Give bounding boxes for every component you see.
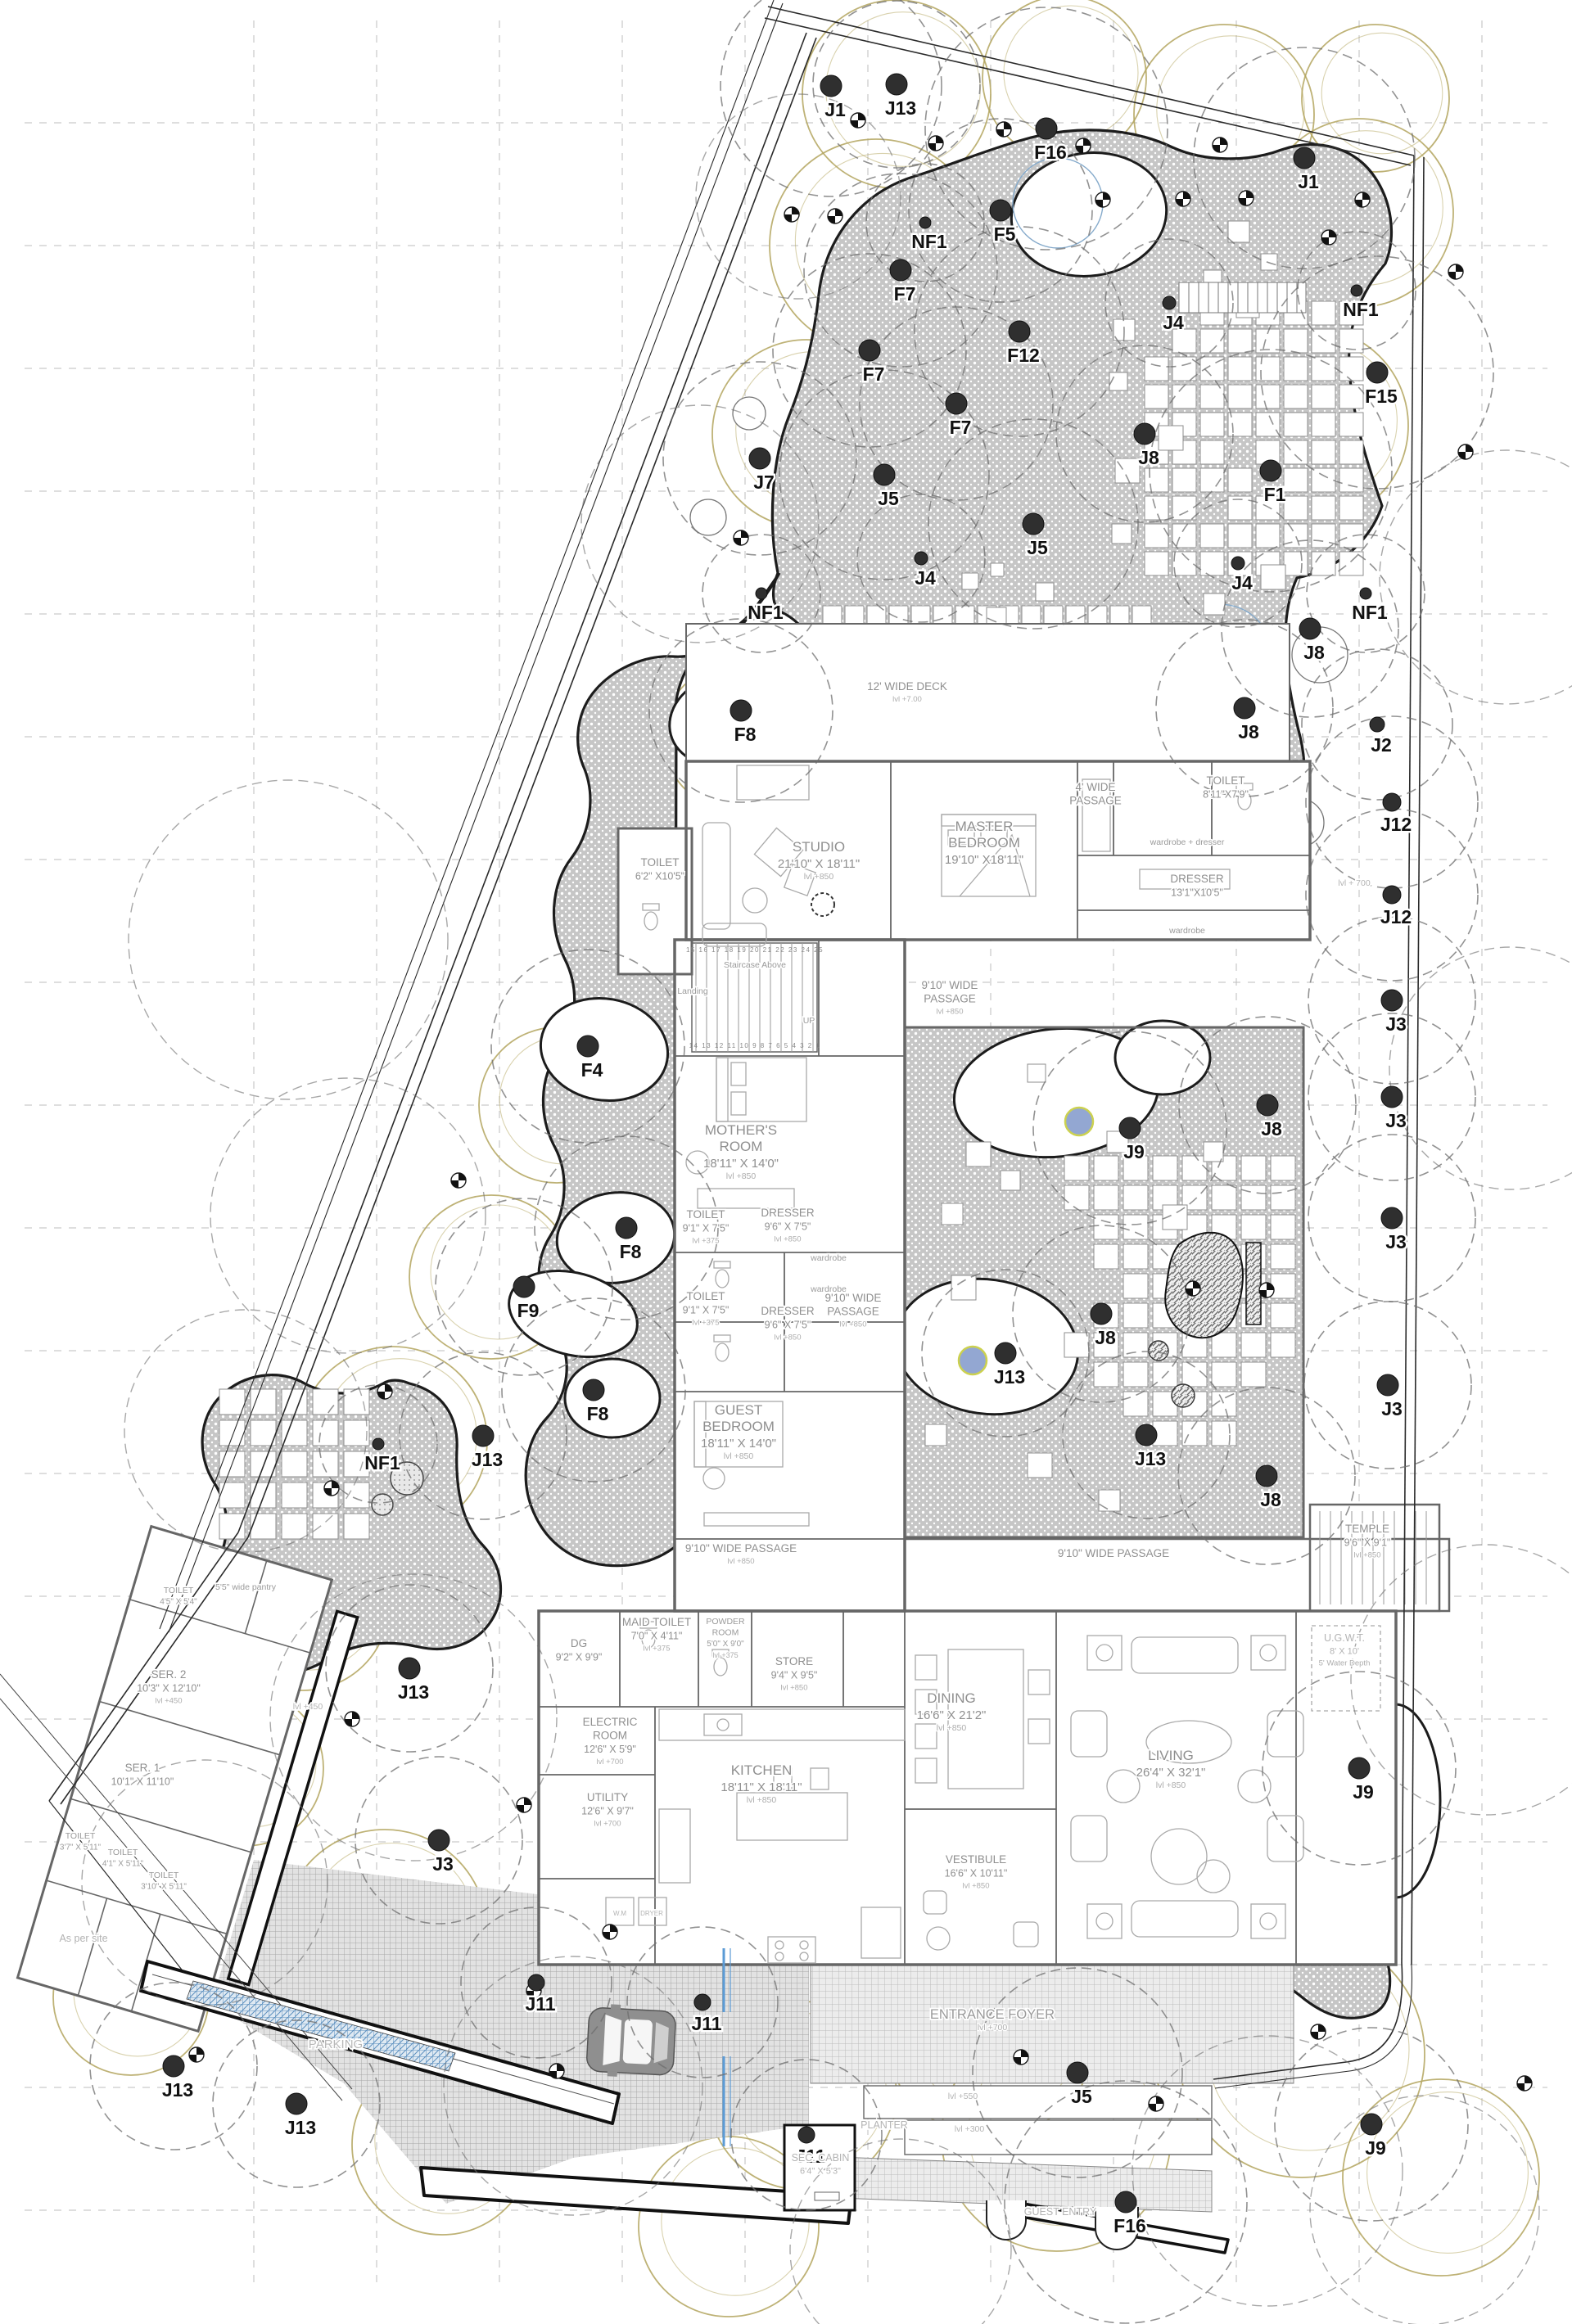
- room-name: 4' WIDE: [1075, 781, 1115, 793]
- plant-dot-F7: [946, 393, 967, 414]
- room-name: PARKING: [309, 2037, 363, 2051]
- room-name: SER. 2: [151, 1668, 187, 1681]
- plant-dot-J8: [1256, 1465, 1277, 1487]
- room-level: lvl +450: [155, 1697, 182, 1706]
- room-name: DRESSER: [761, 1305, 815, 1317]
- room-name: BEDROOM: [702, 1419, 775, 1434]
- plant-label-F4: F4: [581, 1059, 603, 1081]
- plant-label-NF1: NF1: [1343, 299, 1379, 320]
- plant-dot-J8: [1257, 1094, 1278, 1116]
- plant-dot-J3: [1377, 1374, 1398, 1396]
- survey-marker: [828, 209, 842, 223]
- survey-marker: [189, 2047, 204, 2062]
- plant-dot-J9: [1361, 2114, 1382, 2135]
- plant-dot-J8: [1299, 618, 1321, 639]
- room-name: PASSAGE: [924, 993, 976, 1005]
- survey-marker: [1176, 192, 1190, 206]
- room-name: DRESSER: [1170, 873, 1224, 885]
- plant-label-J8: J8: [1303, 642, 1325, 663]
- plant-label-J3: J3: [1385, 1110, 1407, 1131]
- plant-label-J4: J4: [1231, 572, 1253, 593]
- plant-dot-J3: [1381, 1207, 1403, 1229]
- plant-label-J8: J8: [1138, 447, 1159, 468]
- room-name: PASSAGE: [1069, 795, 1122, 807]
- room-name: TOILET: [149, 1870, 179, 1880]
- survey-marker: [1448, 264, 1463, 279]
- room-dims: 8'11"X7'9": [1203, 789, 1249, 801]
- room-name: 12' WIDE DECK: [867, 680, 947, 693]
- room-level: lvl +850: [839, 1320, 866, 1329]
- survey-marker: [1259, 1283, 1274, 1297]
- plant-label-J11: J11: [525, 1993, 555, 2015]
- tree-ring: [733, 397, 766, 430]
- survey-marker: [377, 1384, 392, 1399]
- room-dims: 13'1"X10'5": [1171, 887, 1223, 899]
- plant-label-F16: F16: [1034, 142, 1067, 163]
- room-dims: 18'11" X 14'0": [703, 1157, 779, 1171]
- plant-label-F8: F8: [620, 1241, 642, 1262]
- plant-label-J3: J3: [1381, 1398, 1403, 1419]
- plant-label-J13: J13: [398, 1681, 429, 1703]
- survey-marker: [1239, 191, 1254, 205]
- room-dims: 21'10" X 18'11": [778, 857, 860, 871]
- plant-dot-J8: [1134, 423, 1155, 444]
- planter-step-300: [905, 2120, 1212, 2155]
- plant-dot-J3: [1381, 990, 1403, 1011]
- plant-dot-J5: [1023, 513, 1044, 535]
- plant-label-J13: J13: [1135, 1448, 1166, 1469]
- room-level: lvl +850: [1156, 1780, 1186, 1790]
- room-dims: 26'4" X 32'1": [1136, 1766, 1206, 1780]
- plant-label-J1: J1: [824, 99, 846, 120]
- room-dims: 10'3" X 12'10": [137, 1683, 201, 1694]
- room-level: lvl +850: [937, 1723, 967, 1733]
- plant-dot-J8: [1091, 1303, 1112, 1324]
- plant-dot-NF1: [373, 1438, 384, 1450]
- survey-marker: [928, 136, 943, 151]
- plant-dot-J1: [1294, 147, 1315, 169]
- room-dims: 5'0" X 9'0": [707, 1640, 744, 1649]
- room-level: 5' Water Depth: [1319, 1659, 1371, 1668]
- plant-label-F7: F7: [894, 283, 916, 305]
- plant-label-J8: J8: [1238, 721, 1259, 742]
- room-name: MAID TOILET: [622, 1616, 691, 1628]
- room-dims: 3'10" X 5'11": [141, 1883, 187, 1892]
- room-dims: 9'1" X 7'5": [683, 1305, 730, 1316]
- room-name: GUEST: [715, 1402, 763, 1418]
- survey-marker: [1458, 444, 1473, 459]
- plant-label-J5: J5: [1027, 537, 1048, 558]
- plant-label-F16: F16: [1113, 2215, 1146, 2236]
- survey-marker: [1076, 138, 1091, 153]
- room-dims: 9'6" X 7'5": [765, 1320, 811, 1331]
- room-name: TOILET: [686, 1208, 725, 1221]
- plant-dot-F4: [577, 1036, 599, 1057]
- survey-marker: [451, 1173, 466, 1188]
- survey-marker: [1517, 2076, 1532, 2091]
- room-name: ROOM: [720, 1139, 763, 1154]
- room-name: SEC. CABIN: [792, 2152, 850, 2164]
- room-level: lvl +850: [774, 1235, 801, 1244]
- room-dims: 3'7" X 5'11": [60, 1843, 102, 1852]
- room-name: Landing: [677, 986, 708, 996]
- room-name: TOILET: [164, 1586, 194, 1595]
- plant-dot-J11: [528, 1974, 544, 1991]
- room-name: 9'10" WIDE PASSAGE: [1058, 1547, 1169, 1559]
- room-name: PASSAGE: [827, 1306, 879, 1318]
- survey-marker: [851, 113, 865, 128]
- survey-marker: [324, 1481, 339, 1496]
- room-name: DINING: [927, 1690, 976, 1706]
- plant-dot-F7: [859, 340, 880, 361]
- plant-dot-J13: [472, 1425, 494, 1446]
- stripe-paving-ne: [1179, 282, 1306, 313]
- room-name: DG: [571, 1637, 587, 1649]
- room-name: DRYER: [640, 1910, 663, 1917]
- room-name: VESTIBULE: [946, 1853, 1006, 1866]
- plant-label-J12: J12: [1380, 814, 1412, 835]
- room-level: lvl +850: [727, 1557, 754, 1566]
- plant-dot-NF1: [919, 217, 931, 228]
- survey-marker: [1321, 230, 1336, 245]
- room-name: TOILET: [1206, 774, 1244, 787]
- plant-label-J11: J11: [691, 2013, 721, 2034]
- plant-dot-J5: [874, 464, 895, 485]
- plant-dot-F8: [616, 1217, 637, 1239]
- plant-dot-J9: [1119, 1117, 1141, 1139]
- plant-label-J3: J3: [432, 1853, 454, 1875]
- plant-dot-F1: [1260, 460, 1281, 481]
- svg-text:14 13 12 11 10 9 8 7 6 5 4 3 2: 14 13 12 11 10 9 8 7 6 5 4 3 2 1: [689, 1042, 821, 1049]
- room-dims: 8' X 10': [1330, 1647, 1359, 1657]
- room-name: As per site: [59, 1933, 107, 1944]
- plant-label-F8: F8: [734, 724, 757, 745]
- room-level: lvl +375: [692, 1237, 719, 1246]
- room-name: U.G.W.T.: [1324, 1632, 1365, 1644]
- plant-label-F7: F7: [950, 417, 972, 438]
- plant-dot-J5: [1067, 2062, 1088, 2083]
- room-name: lvl +300: [955, 2124, 985, 2134]
- plant-dot-F8: [583, 1379, 604, 1401]
- room-dims: 19'10" X18'11": [945, 853, 1023, 867]
- room-dims: 6'2" X10'5": [635, 871, 684, 882]
- plant-dot-F8: [730, 700, 752, 721]
- room-name: UP: [803, 1016, 815, 1026]
- room-name: 9'10" WIDE: [922, 979, 978, 991]
- room-level: lvl +850: [1353, 1551, 1380, 1560]
- plant-dot-F16: [1115, 2191, 1136, 2213]
- plant-dot-J4: [915, 552, 928, 565]
- survey-marker: [549, 2064, 564, 2078]
- plant-dot-J13: [163, 2055, 184, 2077]
- room-name: 9'10" WIDE: [825, 1292, 882, 1304]
- room-level: lvl +700: [978, 2023, 1008, 2033]
- plant-dot-J4: [1231, 557, 1244, 570]
- room-dims: 12'6" X 9'7": [581, 1806, 634, 1817]
- plant-label-J3: J3: [1385, 1013, 1407, 1035]
- room-dims: 6'4" X 5'3": [800, 2167, 841, 2177]
- room-dims: 4'1" X 5'11": [102, 1860, 144, 1869]
- lawn-pocket: [565, 1359, 660, 1437]
- room-name: TOILET: [65, 1831, 96, 1841]
- plant-dot-F5: [990, 200, 1011, 221]
- plant-label-F12: F12: [1007, 345, 1040, 366]
- plant-label-J5: J5: [878, 488, 899, 509]
- room-dims: 7'0" X 4'11": [631, 1631, 683, 1642]
- plant-dot-J8: [1234, 697, 1255, 719]
- room-name: STUDIO: [793, 839, 845, 855]
- room-name: TOILET: [640, 856, 679, 869]
- room-name: POWDER: [706, 1617, 745, 1627]
- survey-marker: [603, 1925, 617, 1939]
- plant-label-J9: J9: [1123, 1141, 1145, 1162]
- plant-label-J13: J13: [994, 1366, 1025, 1388]
- room-level: lvl +850: [962, 1882, 989, 1891]
- survey-marker: [1186, 1281, 1200, 1296]
- room-dims: 9'6" X 7'5": [765, 1221, 811, 1233]
- room-name: SER. 1: [125, 1762, 160, 1774]
- survey-marker: [1355, 192, 1370, 207]
- room-dims: 10'1" X 11'10": [111, 1776, 174, 1788]
- plant-label-J12: J12: [1380, 906, 1412, 927]
- room-name: BEDROOM: [948, 835, 1020, 851]
- plant-dot-J13: [995, 1343, 1016, 1364]
- plant-label-J13: J13: [472, 1449, 503, 1470]
- room-name: wardrobe: [810, 1253, 847, 1263]
- plant-label-NF1: NF1: [1352, 602, 1388, 623]
- room-dims: 18'11" X 14'0": [701, 1437, 776, 1451]
- plant-label-F8: F8: [587, 1403, 609, 1424]
- room-name: TEMPLE: [1345, 1523, 1389, 1535]
- room-level: lvl +375: [692, 1319, 719, 1328]
- entrance-foyer-paving: [811, 1961, 1294, 2083]
- room-name: lvl +550: [948, 2092, 978, 2101]
- plant-dot-J11: [798, 2127, 815, 2143]
- room-level: lvl +850: [724, 1451, 754, 1461]
- water-bowl: [959, 1347, 987, 1374]
- room-name: DRESSER: [761, 1207, 815, 1219]
- room-level: lvl +7.00: [892, 695, 922, 704]
- plant-label-J13: J13: [285, 2117, 316, 2138]
- stone-slab: [1246, 1243, 1261, 1324]
- plant-dot-F16: [1036, 118, 1057, 139]
- room-name: ROOM: [593, 1730, 627, 1742]
- plant-label-J1: J1: [1298, 171, 1319, 192]
- room-name: lvl +450: [293, 1702, 323, 1712]
- room-level: lvl +700: [594, 1820, 621, 1829]
- room-name: UTILITY: [587, 1791, 628, 1803]
- room-dims: 16'6" X 21'2": [917, 1708, 987, 1722]
- plant-dot-J11: [694, 1994, 711, 2010]
- room-name: 9'10" WIDE PASSAGE: [685, 1542, 797, 1555]
- plant-dot-NF1: [756, 588, 767, 599]
- room-name: TOILET: [108, 1848, 138, 1857]
- room-level: lvl +375: [643, 1645, 670, 1654]
- plant-dot-J7: [749, 448, 770, 469]
- room-name: KITCHEN: [731, 1762, 793, 1778]
- plant-dot-J13: [399, 1658, 420, 1679]
- plant-dot-F15: [1366, 362, 1388, 383]
- plant-label-J8: J8: [1261, 1118, 1282, 1139]
- room-dims: 16'6" X 10'11": [945, 1868, 1008, 1880]
- plant-dot-NF1: [1351, 285, 1362, 296]
- survey-marker: [517, 1798, 531, 1812]
- plant-dot-J13: [886, 74, 907, 95]
- room-name: wardrobe + dresser: [1150, 837, 1225, 847]
- plant-label-NF1: NF1: [748, 602, 784, 623]
- plant-label-J4: J4: [1163, 312, 1184, 333]
- plant-label-J13: J13: [162, 2079, 193, 2101]
- room-name: MASTER: [955, 819, 1014, 834]
- small-boulder: [1149, 1341, 1168, 1361]
- room-level: lvl +850: [726, 1171, 757, 1181]
- room-name: lvl + 700: [1338, 878, 1371, 888]
- plant-label-J2: J2: [1371, 734, 1392, 756]
- plant-label-J8: J8: [1095, 1327, 1116, 1348]
- survey-marker: [1095, 192, 1110, 207]
- plant-dot-F7: [890, 259, 911, 281]
- plant-dot-J3: [428, 1830, 449, 1851]
- survey-marker: [734, 530, 748, 545]
- plant-label-J5: J5: [1071, 2086, 1092, 2107]
- survey-marker: [996, 122, 1011, 137]
- plant-label-J9: J9: [1353, 1781, 1374, 1803]
- plant-dot-J13: [286, 2093, 307, 2114]
- svg-text:15 16 17 18 19 20 21 22 23 24: 15 16 17 18 19 20 21 22 23 24 25: [686, 946, 824, 954]
- survey-marker: [1213, 138, 1227, 152]
- plant-label-J8: J8: [1260, 1489, 1281, 1510]
- room-name: MOTHER'S: [705, 1122, 777, 1138]
- plant-label-F9: F9: [517, 1300, 540, 1321]
- plant-label-J4: J4: [915, 567, 936, 589]
- room-name: ELECTRIC: [583, 1716, 638, 1728]
- plant-dot-NF1: [1360, 588, 1371, 599]
- boulder: [1165, 1233, 1243, 1338]
- room-dims: 9'2" X 9'9": [556, 1652, 603, 1663]
- room-level: lvl +850: [804, 872, 834, 882]
- survey-marker: [1311, 2024, 1326, 2039]
- room-name: STORE: [775, 1655, 813, 1667]
- plant-dot-J9: [1348, 1758, 1370, 1779]
- plant-dot-F9: [513, 1276, 535, 1297]
- plant-label-F7: F7: [863, 363, 885, 385]
- room-dims: 9'1" X 7'5": [683, 1223, 730, 1234]
- room-level: lvl +850: [936, 1008, 963, 1017]
- landscape-plan-sheet: 15 16 17 18 19 20 21 22 23 24 2514 13 12…: [0, 0, 1572, 2324]
- room-level: lvl +850: [774, 1333, 801, 1343]
- room-name: PLANTER: [861, 2119, 908, 2131]
- room-level: lvl +850: [747, 1795, 777, 1805]
- room-dims: 4'5" X 5'4": [160, 1598, 197, 1607]
- plant-label-NF1: NF1: [911, 231, 947, 252]
- room-level: lvl +700: [596, 1758, 623, 1767]
- plant-dot-J12: [1383, 886, 1401, 904]
- survey-marker: [1014, 2050, 1028, 2065]
- survey-marker: [345, 1712, 359, 1726]
- plant-dot-J2: [1370, 717, 1385, 732]
- room-name: wardrobe: [1168, 926, 1205, 936]
- room-name: W.M: [613, 1910, 626, 1917]
- room-name: TOILET: [686, 1290, 725, 1302]
- water-bowl: [1065, 1108, 1093, 1135]
- plant-dot-J3: [1381, 1086, 1403, 1108]
- room-level: lvl +375: [712, 1651, 738, 1659]
- room-dims: 18'11" X 18'11": [720, 1780, 802, 1794]
- room-name: 5'5" wide pantry: [215, 1582, 277, 1592]
- small-boulder: [1172, 1384, 1195, 1407]
- room-name: ENTRANCE FOYER: [930, 2007, 1055, 2022]
- room-name: ROOM: [712, 1628, 739, 1638]
- room-dims: 9'4" X 9'5": [771, 1670, 818, 1681]
- plant-dot-J12: [1383, 793, 1401, 811]
- plant-label-F5: F5: [994, 223, 1016, 245]
- plant-dot-J13: [1136, 1424, 1157, 1446]
- plant-label-J9: J9: [1365, 2137, 1386, 2159]
- plant-label-F15: F15: [1365, 386, 1398, 407]
- site-plan-drawing: 15 16 17 18 19 20 21 22 23 24 2514 13 12…: [0, 0, 1572, 2324]
- room-dims: 12'6" X 5'9": [584, 1744, 636, 1755]
- room-name: LIVING: [1148, 1748, 1194, 1763]
- survey-marker: [784, 207, 799, 222]
- survey-marker: [1149, 2096, 1163, 2111]
- plant-label-J3: J3: [1385, 1231, 1407, 1252]
- plant-label-J13: J13: [885, 97, 916, 119]
- plant-label-J7: J7: [753, 472, 775, 493]
- room-name: Staircase Above: [724, 960, 786, 970]
- plan-layers: 15 16 17 18 19 20 21 22 23 24 2514 13 12…: [0, 0, 1572, 2324]
- plant-label-NF1: NF1: [364, 1452, 400, 1473]
- plant-dot-J1: [820, 75, 842, 97]
- room-name: GUEST ENTRY: [1024, 2206, 1097, 2218]
- plant-label-F1: F1: [1264, 484, 1286, 505]
- plant-dot-J4: [1163, 296, 1176, 309]
- room-level: lvl +850: [780, 1684, 807, 1693]
- plant-dot-F12: [1009, 321, 1030, 342]
- room-dims: 9'6" X 9'1": [1344, 1537, 1391, 1549]
- parked-car: [586, 2003, 676, 2079]
